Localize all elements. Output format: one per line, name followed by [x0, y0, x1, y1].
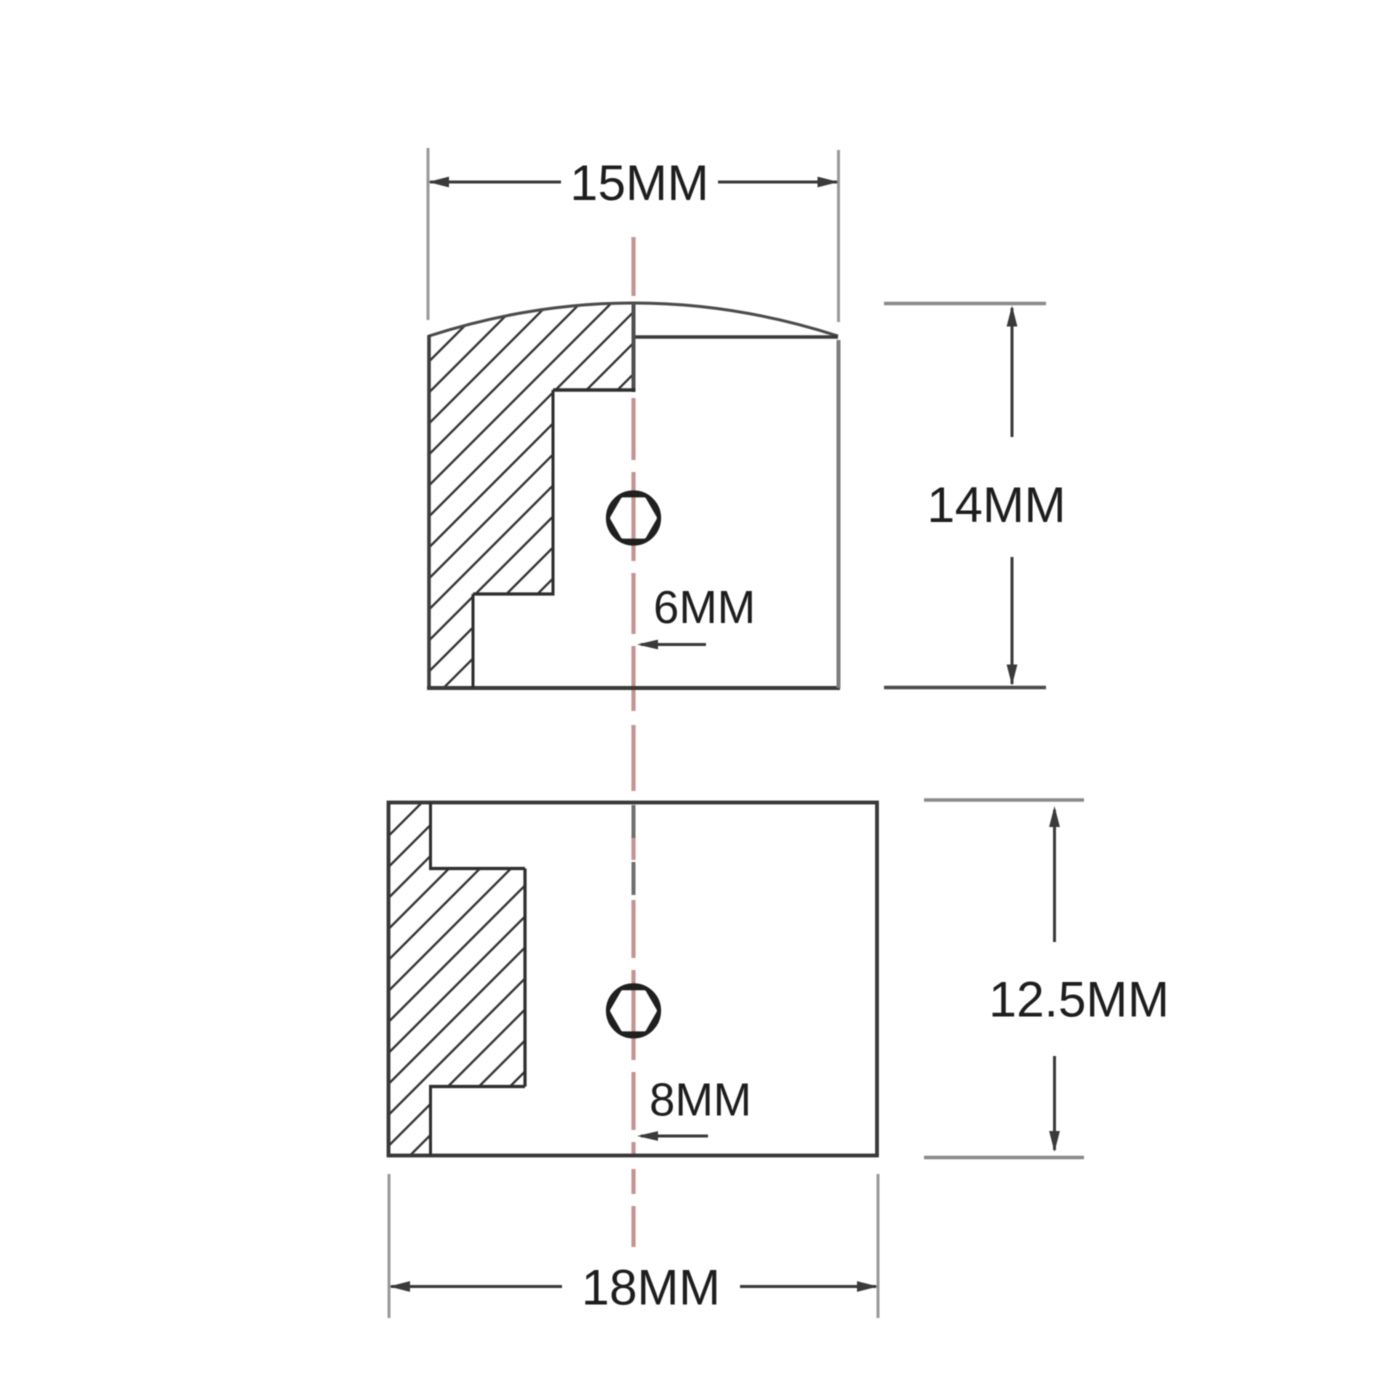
- svg-text:6MM: 6MM: [653, 581, 755, 633]
- svg-text:18MM: 18MM: [582, 1260, 721, 1316]
- svg-text:12.5MM: 12.5MM: [989, 972, 1170, 1028]
- svg-text:14MM: 14MM: [927, 477, 1066, 533]
- svg-text:8MM: 8MM: [649, 1074, 751, 1126]
- svg-text:15MM: 15MM: [570, 155, 709, 211]
